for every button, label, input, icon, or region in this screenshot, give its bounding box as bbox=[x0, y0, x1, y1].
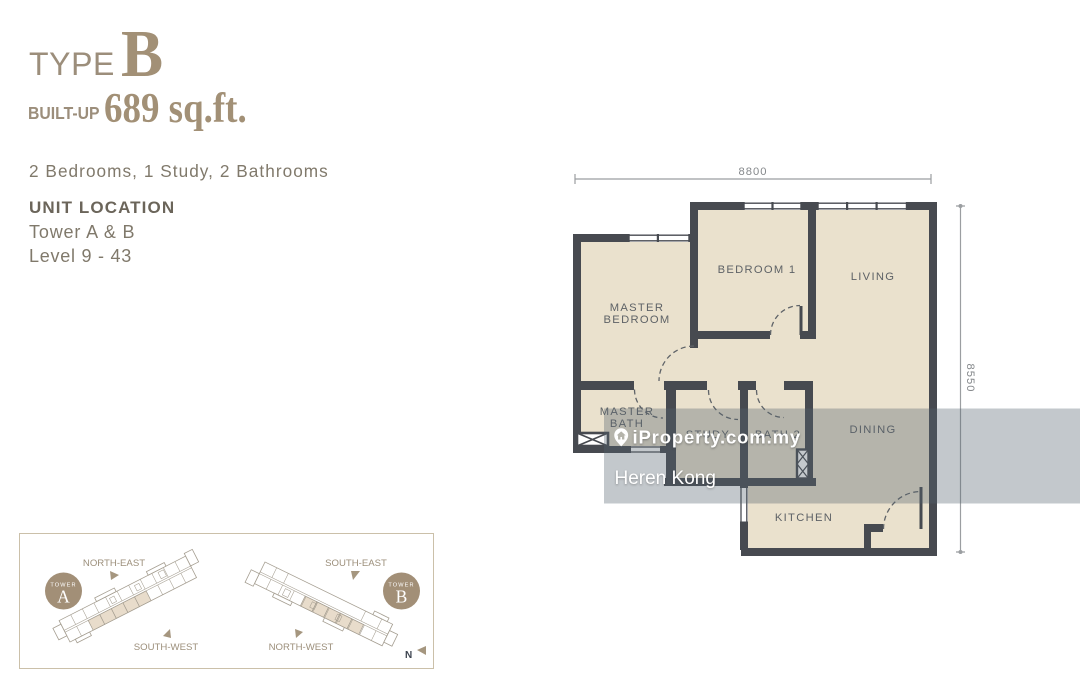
svg-text:SOUTH-EAST: SOUTH-EAST bbox=[325, 558, 387, 569]
svg-text:N: N bbox=[405, 650, 412, 661]
svg-text:NORTH-EAST: NORTH-EAST bbox=[83, 558, 145, 569]
svg-text:Heren Kong: Heren Kong bbox=[615, 468, 716, 489]
svg-text:KITCHEN: KITCHEN bbox=[775, 512, 833, 524]
svg-text:MASTER: MASTER bbox=[610, 302, 664, 314]
svg-text:B: B bbox=[396, 587, 408, 607]
svg-text:SOUTH-WEST: SOUTH-WEST bbox=[134, 642, 199, 653]
svg-text:NORTH-WEST: NORTH-WEST bbox=[269, 642, 334, 653]
svg-text:LIVING: LIVING bbox=[851, 271, 895, 283]
svg-text:A: A bbox=[57, 587, 70, 607]
svg-text:BEDROOM 1: BEDROOM 1 bbox=[718, 264, 797, 276]
svg-text:8800: 8800 bbox=[739, 166, 768, 178]
svg-text:8550: 8550 bbox=[964, 364, 976, 393]
svg-text:iProperty.com.my: iProperty.com.my bbox=[633, 427, 802, 448]
svg-text:BEDROOM: BEDROOM bbox=[604, 314, 671, 326]
